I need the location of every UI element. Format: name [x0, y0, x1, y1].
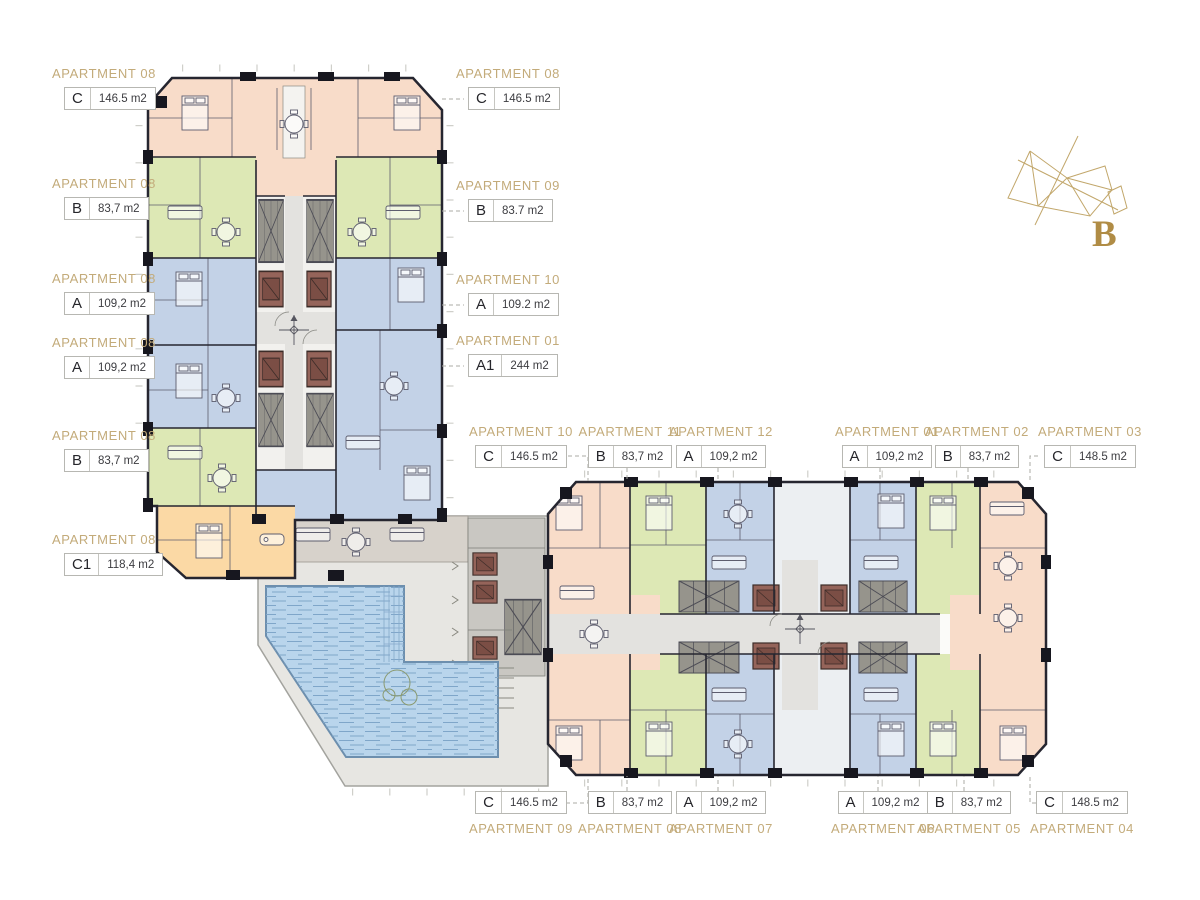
apartment-area-box: A 109,2 m2 — [64, 356, 155, 379]
apartment-label: APARTMENT 10 A 109.2 m2 — [456, 272, 596, 316]
unit-b-bottom-right — [916, 654, 980, 775]
apartment-area-box: C 146.5 m2 — [468, 87, 560, 110]
apartment-area-box: B 83,7 m2 — [927, 791, 1012, 814]
apartment-label: APARTMENT 08 B 83,7 m2 — [52, 428, 192, 472]
apartment-name: APARTMENT 08 — [52, 428, 192, 443]
apartment-label: APARTMENT 08 C 146.5 m2 — [456, 66, 596, 110]
apartment-area-box: B 83.7 m2 — [468, 199, 553, 222]
stairs-icon — [306, 394, 333, 447]
apartment-area: 146.5 m2 — [91, 88, 155, 109]
apartment-type: A — [65, 357, 90, 378]
apartment-area: 109.2 m2 — [494, 294, 558, 315]
apartment-area-box: C 148.5 m2 — [1036, 791, 1128, 814]
apartment-name: APARTMENT 01 — [456, 333, 596, 348]
apartment-area: 109,2 m2 — [702, 792, 766, 813]
apartment-area-box: B 83,7 m2 — [64, 449, 149, 472]
apartment-type: A — [677, 446, 702, 467]
apartment-type: B — [65, 198, 90, 219]
apartment-area-box: C 146.5 m2 — [64, 87, 156, 110]
apartment-name: APARTMENT 08 — [52, 66, 192, 81]
elevator-icon — [259, 271, 283, 306]
apartment-name: APARTMENT 08 — [52, 271, 192, 286]
logo-letter: B — [1092, 214, 1117, 255]
apartment-area-box: A 109,2 m2 — [64, 292, 155, 315]
brand-logo: B — [1000, 128, 1150, 258]
elevator-icon — [259, 351, 283, 386]
apartment-label: APARTMENT 01 A1 244 m2 — [456, 333, 596, 377]
apartment-type: B — [65, 450, 90, 471]
apartment-area: 118,4 m2 — [99, 554, 162, 575]
apartment-label: APARTMENT 08 A 109,2 m2 — [52, 335, 192, 379]
apartment-name: APARTMENT 12 — [651, 424, 791, 439]
apartment-area: 109,2 m2 — [90, 357, 154, 378]
apartment-area: 148.5 m2 — [1071, 446, 1135, 467]
apartment-name: APARTMENT 08 — [52, 176, 192, 191]
apartment-type: B — [589, 446, 614, 467]
floor-plan-page: B APARTMENT 08 C 146.5 m2 APARTMENT 08 B… — [0, 0, 1200, 900]
apartment-area: 146.5 m2 — [495, 88, 559, 109]
apartment-area-box: C 146.5 m2 — [475, 791, 567, 814]
apartment-type: C — [469, 88, 495, 109]
stairs-icon — [258, 200, 283, 262]
elevator-icon — [473, 581, 497, 603]
apartment-name: APARTMENT 04 — [1012, 821, 1152, 836]
apartment-area: 83,7 m2 — [90, 450, 148, 471]
apartment-area: 83.7 m2 — [494, 200, 552, 221]
elevator-icon — [821, 585, 847, 611]
elevator-icon — [473, 637, 497, 659]
elevator-icon — [753, 643, 779, 669]
apartment-name: APARTMENT 08 — [52, 335, 192, 350]
stairs-icon — [505, 600, 542, 655]
stairs-icon — [306, 200, 333, 262]
elevator-icon — [473, 553, 497, 575]
apartment-type: C — [476, 446, 502, 467]
stairs-icon — [258, 394, 283, 447]
apartment-type: A — [65, 293, 90, 314]
right-block-plan — [540, 477, 1051, 778]
apartment-name: APARTMENT 08 — [456, 66, 596, 81]
apartment-area-box: A 109,2 m2 — [676, 445, 767, 468]
apartment-area: 83,7 m2 — [90, 198, 148, 219]
apartment-area: 148.5 m2 — [1063, 792, 1127, 813]
stairs-icon — [679, 642, 739, 673]
pool-deck — [258, 516, 548, 786]
apartment-type: B — [469, 200, 494, 221]
apartment-name: APARTMENT 10 — [456, 272, 596, 287]
stairs-icon — [679, 581, 739, 612]
apartment-area-box: A 109.2 m2 — [468, 293, 559, 316]
apartment-type: A — [843, 446, 868, 467]
apartment-label: APARTMENT 08 C1 118,4 m2 — [52, 532, 192, 576]
apartment-area-box: C 146.5 m2 — [475, 445, 567, 468]
apartment-area: 244 m2 — [502, 355, 556, 376]
apartment-label: A 109,2 m2 APARTMENT 07 — [651, 791, 791, 836]
unit-a-right — [336, 258, 442, 330]
apartment-type: C1 — [65, 554, 99, 575]
apartment-type: B — [936, 446, 961, 467]
left-tower-plan — [143, 72, 447, 580]
apartment-type: A — [839, 792, 864, 813]
apartment-type: C — [65, 88, 91, 109]
apartment-name: APARTMENT 07 — [651, 821, 791, 836]
apartment-area: 146.5 m2 — [502, 792, 566, 813]
apartment-name: APARTMENT 03 — [1020, 424, 1160, 439]
stairs-icon — [859, 581, 907, 612]
apartment-name: APARTMENT 08 — [52, 532, 192, 547]
apartment-type: A — [677, 792, 702, 813]
stairs-icon — [859, 642, 907, 673]
apartment-area: 83,7 m2 — [961, 446, 1019, 467]
apartment-label: APARTMENT 08 A 109,2 m2 — [52, 271, 192, 315]
apartment-area-box: B 83,7 m2 — [64, 197, 149, 220]
apartment-label: APARTMENT 03 C 148.5 m2 — [1020, 424, 1160, 468]
apartment-label: C 148.5 m2 APARTMENT 04 — [1012, 791, 1152, 836]
elevator-icon — [307, 351, 331, 386]
apartment-label: APARTMENT 08 C 146.5 m2 — [52, 66, 192, 110]
apartment-type: A — [469, 294, 494, 315]
apartment-type: C — [476, 792, 502, 813]
apartment-name: APARTMENT 09 — [456, 178, 596, 193]
logo-wireframe-icon — [1008, 136, 1127, 225]
apartment-area-box: B 83,7 m2 — [935, 445, 1020, 468]
apartment-type: C — [1037, 792, 1063, 813]
apartment-type: A1 — [469, 355, 502, 376]
apartment-area-box: A1 244 m2 — [468, 354, 558, 377]
apartment-type: B — [589, 792, 614, 813]
elevator-icon — [821, 643, 847, 669]
apartment-area: 109,2 m2 — [90, 293, 154, 314]
apartment-area: 83,7 m2 — [953, 792, 1011, 813]
apartment-area: 146.5 m2 — [502, 446, 566, 467]
apartment-type: C — [1045, 446, 1071, 467]
apartment-label: APARTMENT 09 B 83.7 m2 — [456, 178, 596, 222]
apartment-area: 109,2 m2 — [702, 446, 766, 467]
apartment-area-box: A 109,2 m2 — [676, 791, 767, 814]
apartment-label: APARTMENT 12 A 109,2 m2 — [651, 424, 791, 468]
apartment-area-box: C1 118,4 m2 — [64, 553, 163, 576]
apartment-area-box: C 148.5 m2 — [1044, 445, 1136, 468]
apartment-label: APARTMENT 08 B 83,7 m2 — [52, 176, 192, 220]
apartment-type: B — [928, 792, 953, 813]
elevator-icon — [307, 271, 331, 306]
elevator-icon — [753, 585, 779, 611]
